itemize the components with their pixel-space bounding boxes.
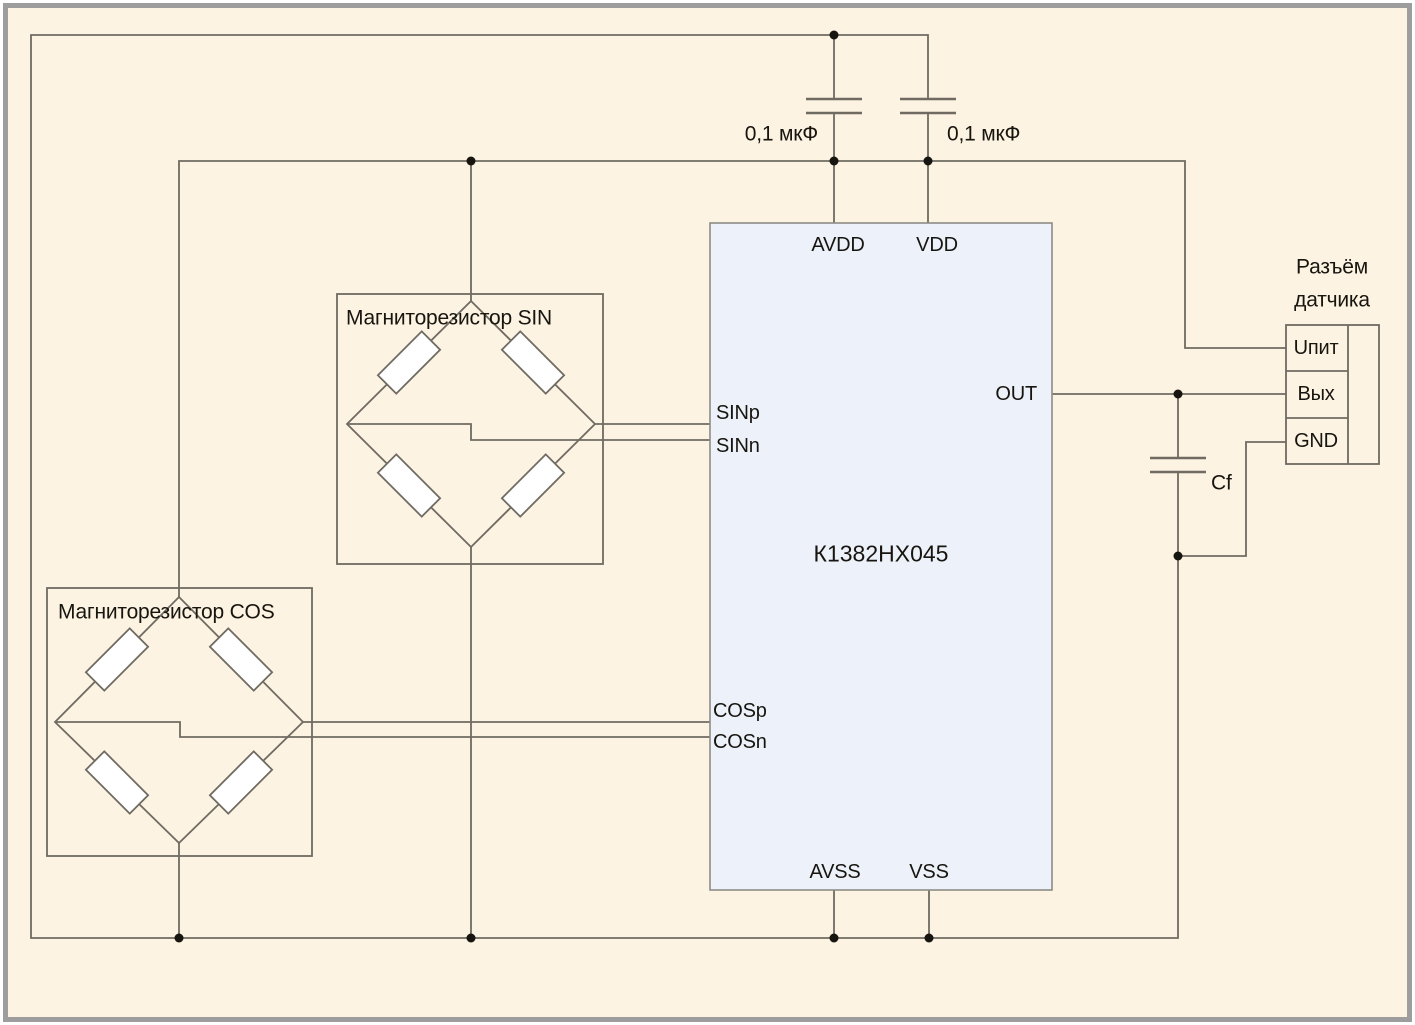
sin-bridge (337, 294, 603, 564)
junction-dot (830, 157, 839, 166)
chip-pin-sinn: SINn (716, 436, 760, 456)
capacitor-c2 (900, 99, 956, 113)
wire-cosn (55, 722, 710, 737)
resistor (378, 454, 440, 516)
chip-pin-vdd: VDD (916, 235, 958, 255)
capacitor-c1-label: 0,1 мкФ (745, 124, 818, 145)
wire-avss-vss-stubs (834, 890, 929, 938)
connector-pin-vykh: Вых (1297, 384, 1334, 404)
chip-pin-cosn: COSn (713, 732, 767, 752)
junction-dot (924, 157, 933, 166)
resistor (86, 751, 148, 813)
chip-pin-avdd: AVDD (811, 235, 864, 255)
cos-bridge-resistors (86, 628, 272, 813)
connector-title-line1: Разъём (1296, 257, 1368, 278)
connector-title-line2: датчика (1294, 290, 1370, 311)
cos-bridge-label: Магниторезистор COS (58, 602, 275, 623)
chip-pin-sinp: SINp (716, 403, 760, 423)
schematic-canvas (0, 0, 1415, 1025)
capacitor-c2-label: 0,1 мкФ (947, 124, 1020, 145)
capacitor-cf-label: Cf (1211, 473, 1232, 494)
chip-pin-out: OUT (995, 384, 1037, 404)
resistor (502, 454, 564, 516)
schematic: 0,1 мкФ 0,1 мкФ Магниторезистор SIN Магн… (0, 0, 1415, 1025)
junction-dot (1174, 390, 1183, 399)
junction-dot (467, 934, 476, 943)
sin-bridge-label: Магниторезистор SIN (346, 308, 552, 329)
junction-dot (830, 934, 839, 943)
resistor (86, 628, 148, 690)
junction-dot (925, 934, 934, 943)
junction-dot (1174, 552, 1183, 561)
resistor (210, 628, 272, 690)
junction-dot (830, 31, 839, 40)
wire-avdd-vdd-stubs (834, 161, 928, 223)
junction-dot (467, 157, 476, 166)
capacitor-c1 (806, 99, 862, 113)
chip-pin-cosp: COSp (713, 701, 767, 721)
sin-bridge-box (337, 294, 603, 564)
wire-cap-bottom-leads (834, 113, 928, 161)
connector-pin-upit: Uпит (1294, 338, 1339, 358)
chip-name: К1382НХ045 (814, 543, 949, 566)
chip-pin-vss: VSS (909, 862, 948, 882)
connector-pin-gnd: GND (1294, 431, 1338, 451)
resistor (378, 331, 440, 393)
resistor (502, 331, 564, 393)
resistor (210, 751, 272, 813)
wire-sinn (347, 424, 710, 440)
junction-dot (175, 934, 184, 943)
chip-pin-avss: AVSS (809, 862, 860, 882)
capacitor-cf (1150, 458, 1206, 472)
cos-bridge-diamond (55, 597, 303, 843)
